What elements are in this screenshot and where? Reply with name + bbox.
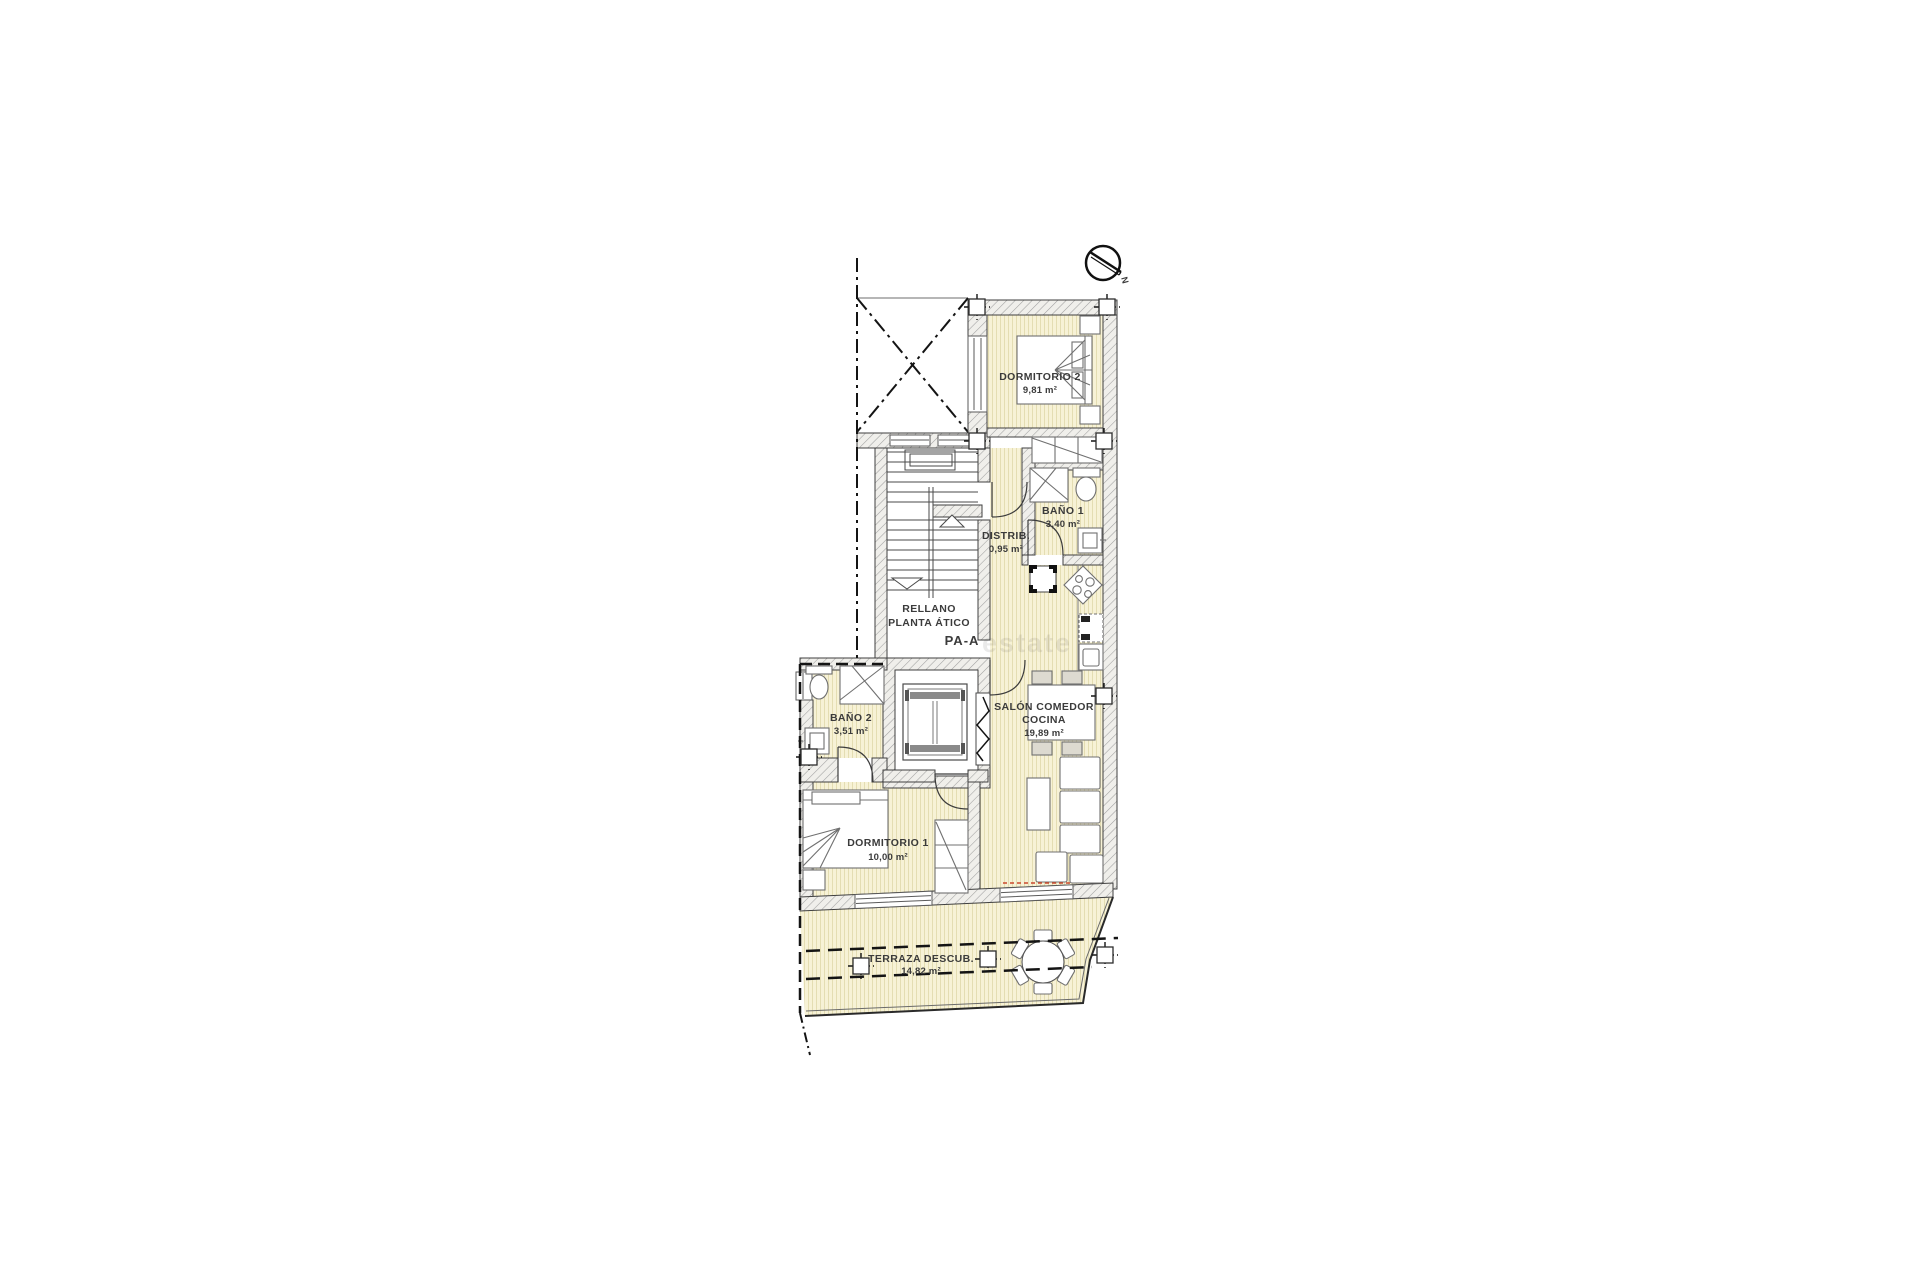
- wall-stair-west: [875, 448, 887, 658]
- svg-text:3,51 m²: 3,51 m²: [834, 726, 868, 737]
- boundary-southwest: [800, 1013, 810, 1055]
- wall-dorm1-east: [968, 782, 980, 898]
- svg-text:14,82 m²: 14,82 m²: [901, 966, 941, 977]
- svg-text:SALÓN COMEDOR: SALÓN COMEDOR: [994, 700, 1094, 713]
- shower-bano1: [1030, 468, 1068, 502]
- bed-bench: [803, 870, 825, 890]
- tv-console: [1027, 778, 1050, 830]
- dining-chair: [1062, 742, 1082, 755]
- watermark-text: estate: [982, 628, 1072, 658]
- floor-plan-svg: N estate DORMITORIO 2 9,81 m² BAÑO 1 3,4…: [0, 0, 1920, 1280]
- wall-stair-landing: [933, 505, 982, 517]
- svg-text:TERRAZA DESCUB.: TERRAZA DESCUB.: [868, 953, 974, 965]
- svg-text:10,00 m²: 10,00 m²: [868, 852, 908, 863]
- window-dorm2-patio: [968, 336, 987, 412]
- nightstand: [1080, 316, 1100, 334]
- dining-chair: [1032, 742, 1052, 755]
- unit-code: PA-A: [945, 633, 980, 648]
- svg-text:DORMITORIO 1: DORMITORIO 1: [847, 837, 929, 849]
- svg-text:DISTRIB.: DISTRIB.: [982, 530, 1030, 542]
- window-dorm1-terrace: [855, 891, 932, 908]
- svg-text:19,89 m²: 19,89 m²: [1024, 728, 1064, 739]
- label-rellano: RELLANO PLANTA ÁTICO: [888, 603, 970, 629]
- svg-text:BAÑO 2: BAÑO 2: [830, 711, 872, 724]
- wall-right: [1103, 315, 1117, 889]
- wall-dorm2-south: [987, 428, 1103, 437]
- stair-arrow-down: [892, 578, 922, 589]
- svg-text:0,95 m²: 0,95 m²: [989, 544, 1023, 555]
- svg-text:DORMITORIO 2: DORMITORIO 2: [999, 371, 1081, 383]
- elevator-rail-top: [910, 692, 960, 699]
- kitchen-column: [1030, 566, 1056, 592]
- void-patio: [857, 298, 968, 432]
- window-salon-terrace: [1000, 885, 1073, 902]
- dining-chair: [1032, 671, 1052, 684]
- svg-text:BAÑO 1: BAÑO 1: [1042, 504, 1084, 517]
- dining-chair: [1062, 671, 1082, 684]
- staircase: [887, 450, 978, 598]
- terrace-table: [1022, 941, 1064, 983]
- svg-text:3,40 m²: 3,40 m²: [1046, 519, 1080, 530]
- wall-dorm1-north-b: [968, 770, 988, 782]
- stair-well-opening-inner: [910, 454, 952, 466]
- north-label: N: [1119, 276, 1130, 285]
- svg-text:PLANTA ÁTICO: PLANTA ÁTICO: [888, 616, 970, 629]
- wardrobe-dormitorio-1: [935, 820, 968, 893]
- wall-bano1-south-a: [1022, 555, 1028, 565]
- wall-dorm2-west-a: [968, 315, 987, 336]
- wall-dorm1-north-a: [883, 770, 935, 782]
- svg-text:RELLANO: RELLANO: [902, 603, 956, 615]
- wall-stair-east-a: [978, 448, 990, 482]
- floor-plan-page: N estate DORMITORIO 2 9,81 m² BAÑO 1 3,4…: [0, 0, 1920, 1280]
- nightstand: [1080, 406, 1100, 424]
- stair-well-opening: [905, 450, 955, 470]
- shower-bano2: [840, 666, 884, 704]
- elevator: [903, 684, 990, 765]
- wall-bano1-south-b: [1063, 555, 1103, 565]
- svg-text:9,81 m²: 9,81 m²: [1023, 385, 1057, 396]
- elevator-rail-bottom: [910, 745, 960, 752]
- north-compass-icon: N: [1086, 246, 1131, 285]
- sink-bano1: [1078, 528, 1106, 553]
- svg-text:COCINA: COCINA: [1022, 714, 1066, 726]
